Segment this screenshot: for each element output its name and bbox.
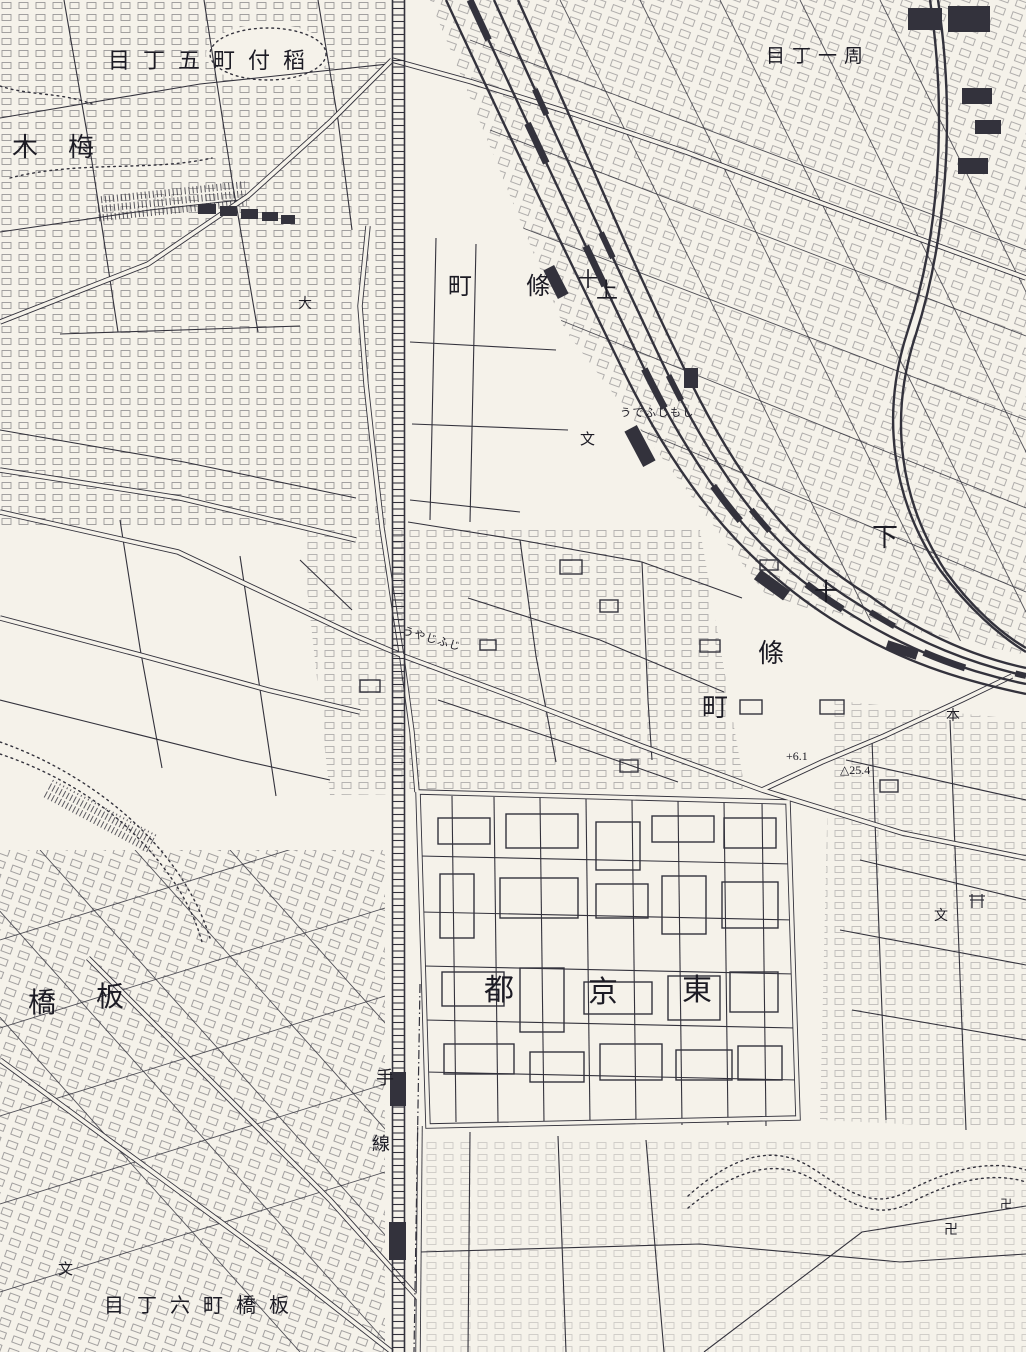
label-kamijujo-kami: 上 — [596, 278, 618, 303]
label-benchmark-point: △25.4 — [840, 763, 870, 777]
label-shimojujo-shimo: 下 — [872, 523, 898, 552]
label-dai: 大 — [298, 296, 312, 312]
label-town-itabashi-6chome: 目丁六町橋板 — [104, 1294, 302, 1317]
label-itabashi-hashi: 橋 — [28, 987, 56, 1019]
school-icon: 文 — [58, 1261, 73, 1278]
label-hon: 本 — [946, 708, 960, 724]
scanned-map-page: 目丁五町付稻 目丁一周 木梅 町 條 十 上 下 十 條 町 うでふじもし うや… — [0, 0, 1026, 1352]
label-railway-sen: 線 — [372, 1134, 390, 1154]
label-town-1chome: 目丁一周 — [766, 46, 870, 67]
label-shimojujo-jo: 條 — [758, 639, 784, 668]
label-railway-te: 手 — [376, 1068, 394, 1088]
label-kamijujo-jo: 條 — [526, 273, 550, 300]
label-tokyo-to: 都 — [484, 974, 514, 1007]
temple-manji-icon: 卍 — [944, 1222, 958, 1238]
label-shimojujo-ju: 十 — [814, 579, 838, 606]
school-icon: 文 — [580, 431, 595, 448]
label-town-inatsuke-5chome: 目丁五町付稻 — [108, 48, 318, 73]
label-itabashi-ita: 板 — [96, 981, 124, 1013]
label-town-umeki: 木梅 — [12, 133, 124, 162]
school-icon: 文 — [934, 908, 948, 924]
label-elevation-point: +6.1 — [786, 749, 808, 763]
label-station-kana-shimojujo: うでふじもし — [620, 406, 695, 419]
temple-manji-icon: 卍 — [1000, 1197, 1012, 1211]
label-tokyo-kyo: 京 — [588, 976, 618, 1009]
label-tokyo-higashi: 東 — [682, 974, 712, 1007]
label-kamijujo-machi: 町 — [448, 274, 472, 300]
label-kamijujo-ju: 十 — [578, 268, 598, 291]
label-shimojujo-machi: 町 — [702, 693, 728, 722]
station-platform — [389, 1222, 406, 1260]
vertical-railway — [392, 0, 405, 1352]
map-canvas: 目丁五町付稻 目丁一周 木梅 町 條 十 上 下 十 條 町 うでふじもし うや… — [0, 0, 1026, 1352]
